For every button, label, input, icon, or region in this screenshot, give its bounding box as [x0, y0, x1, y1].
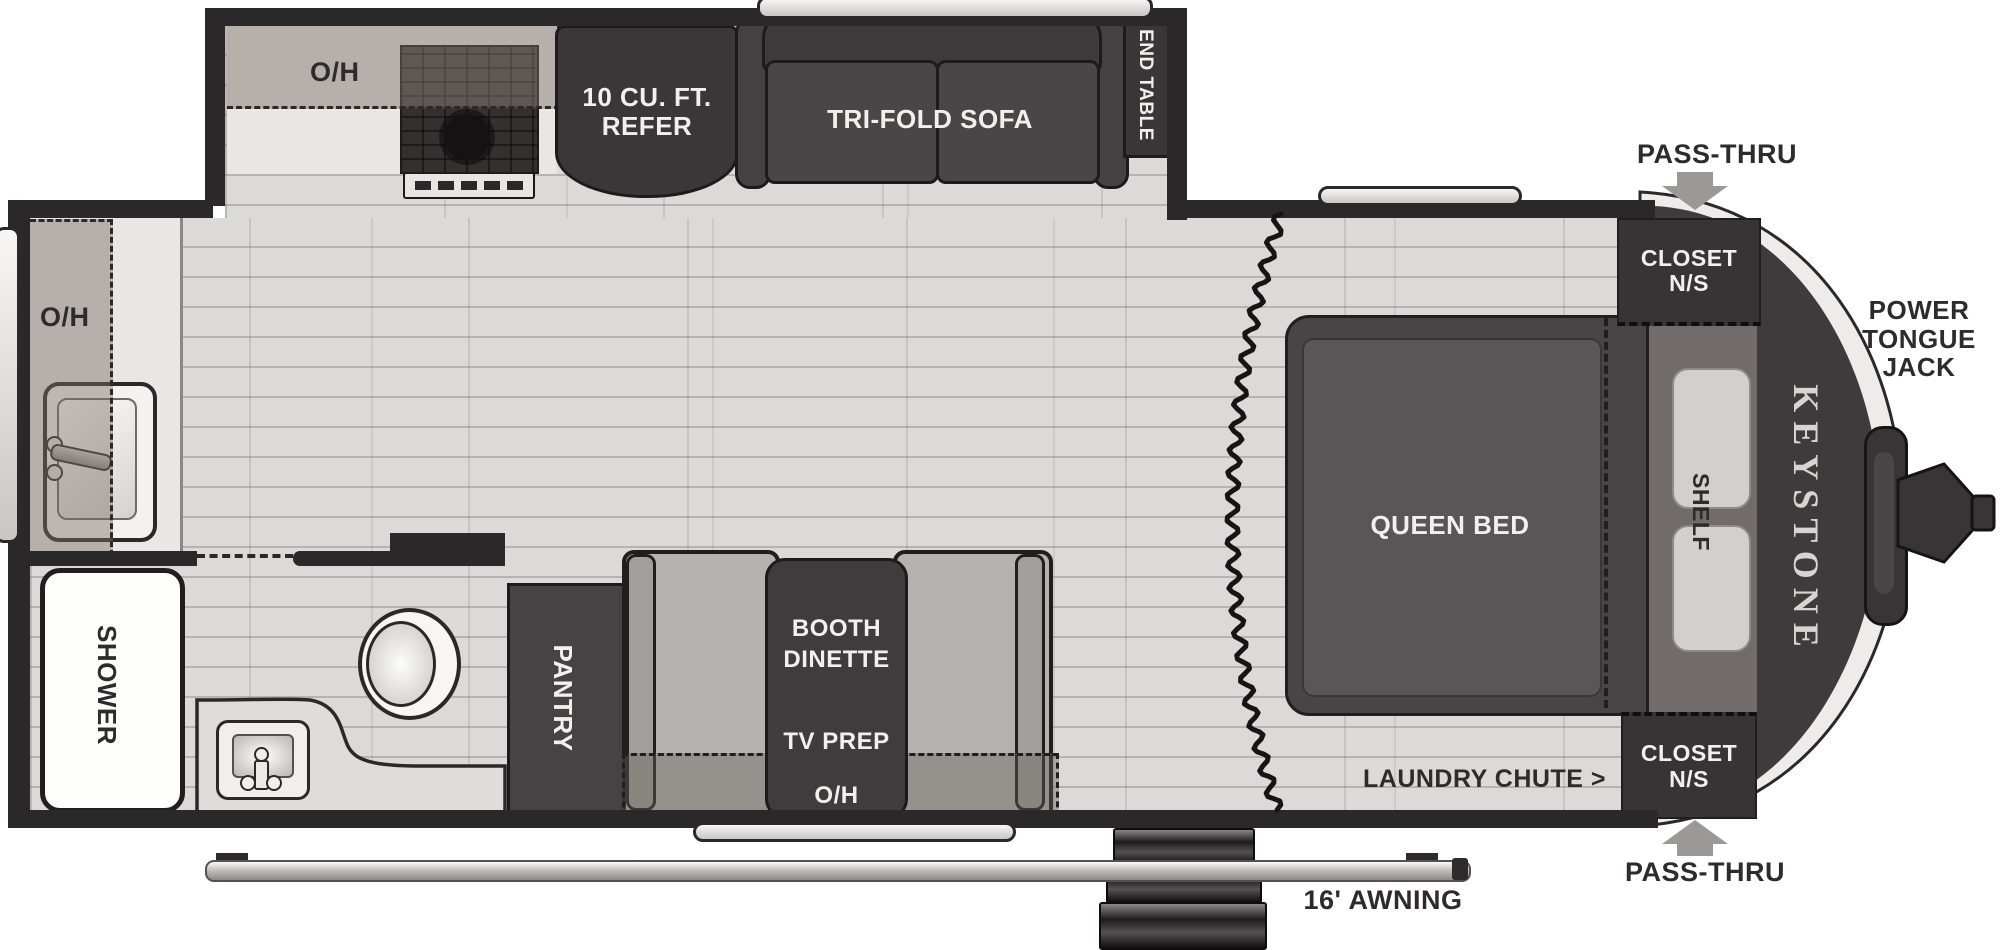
power-tongue-jack-label-3: JACK — [1883, 353, 1956, 382]
floorplan-canvas: O/H SHOWER PANTRY BOOTH DINETTE TV PREP … — [0, 0, 2000, 950]
pass-thru-top-arrow-stem — [1677, 172, 1713, 187]
awning-rail — [205, 860, 1471, 882]
pass-thru-bottom-arrow-stem — [1677, 843, 1713, 856]
pass-thru-top-label: PASS-THRU — [1617, 140, 1817, 170]
pass-thru-up-arrow-icon — [1662, 820, 1728, 844]
pass-thru-bottom-label: PASS-THRU — [1600, 858, 1810, 888]
power-tongue-jack-label-2: TONGUE — [1862, 325, 1976, 354]
power-tongue-jack-label: POWER TONGUE JACK — [1840, 296, 1998, 382]
awning-label: 16' AWNING — [1288, 886, 1478, 916]
pass-thru-down-arrow-icon — [1662, 186, 1728, 210]
awning-end-cap — [1452, 858, 1468, 880]
entry-step-3 — [1099, 902, 1267, 950]
power-tongue-jack-label-1: POWER — [1869, 296, 1970, 325]
